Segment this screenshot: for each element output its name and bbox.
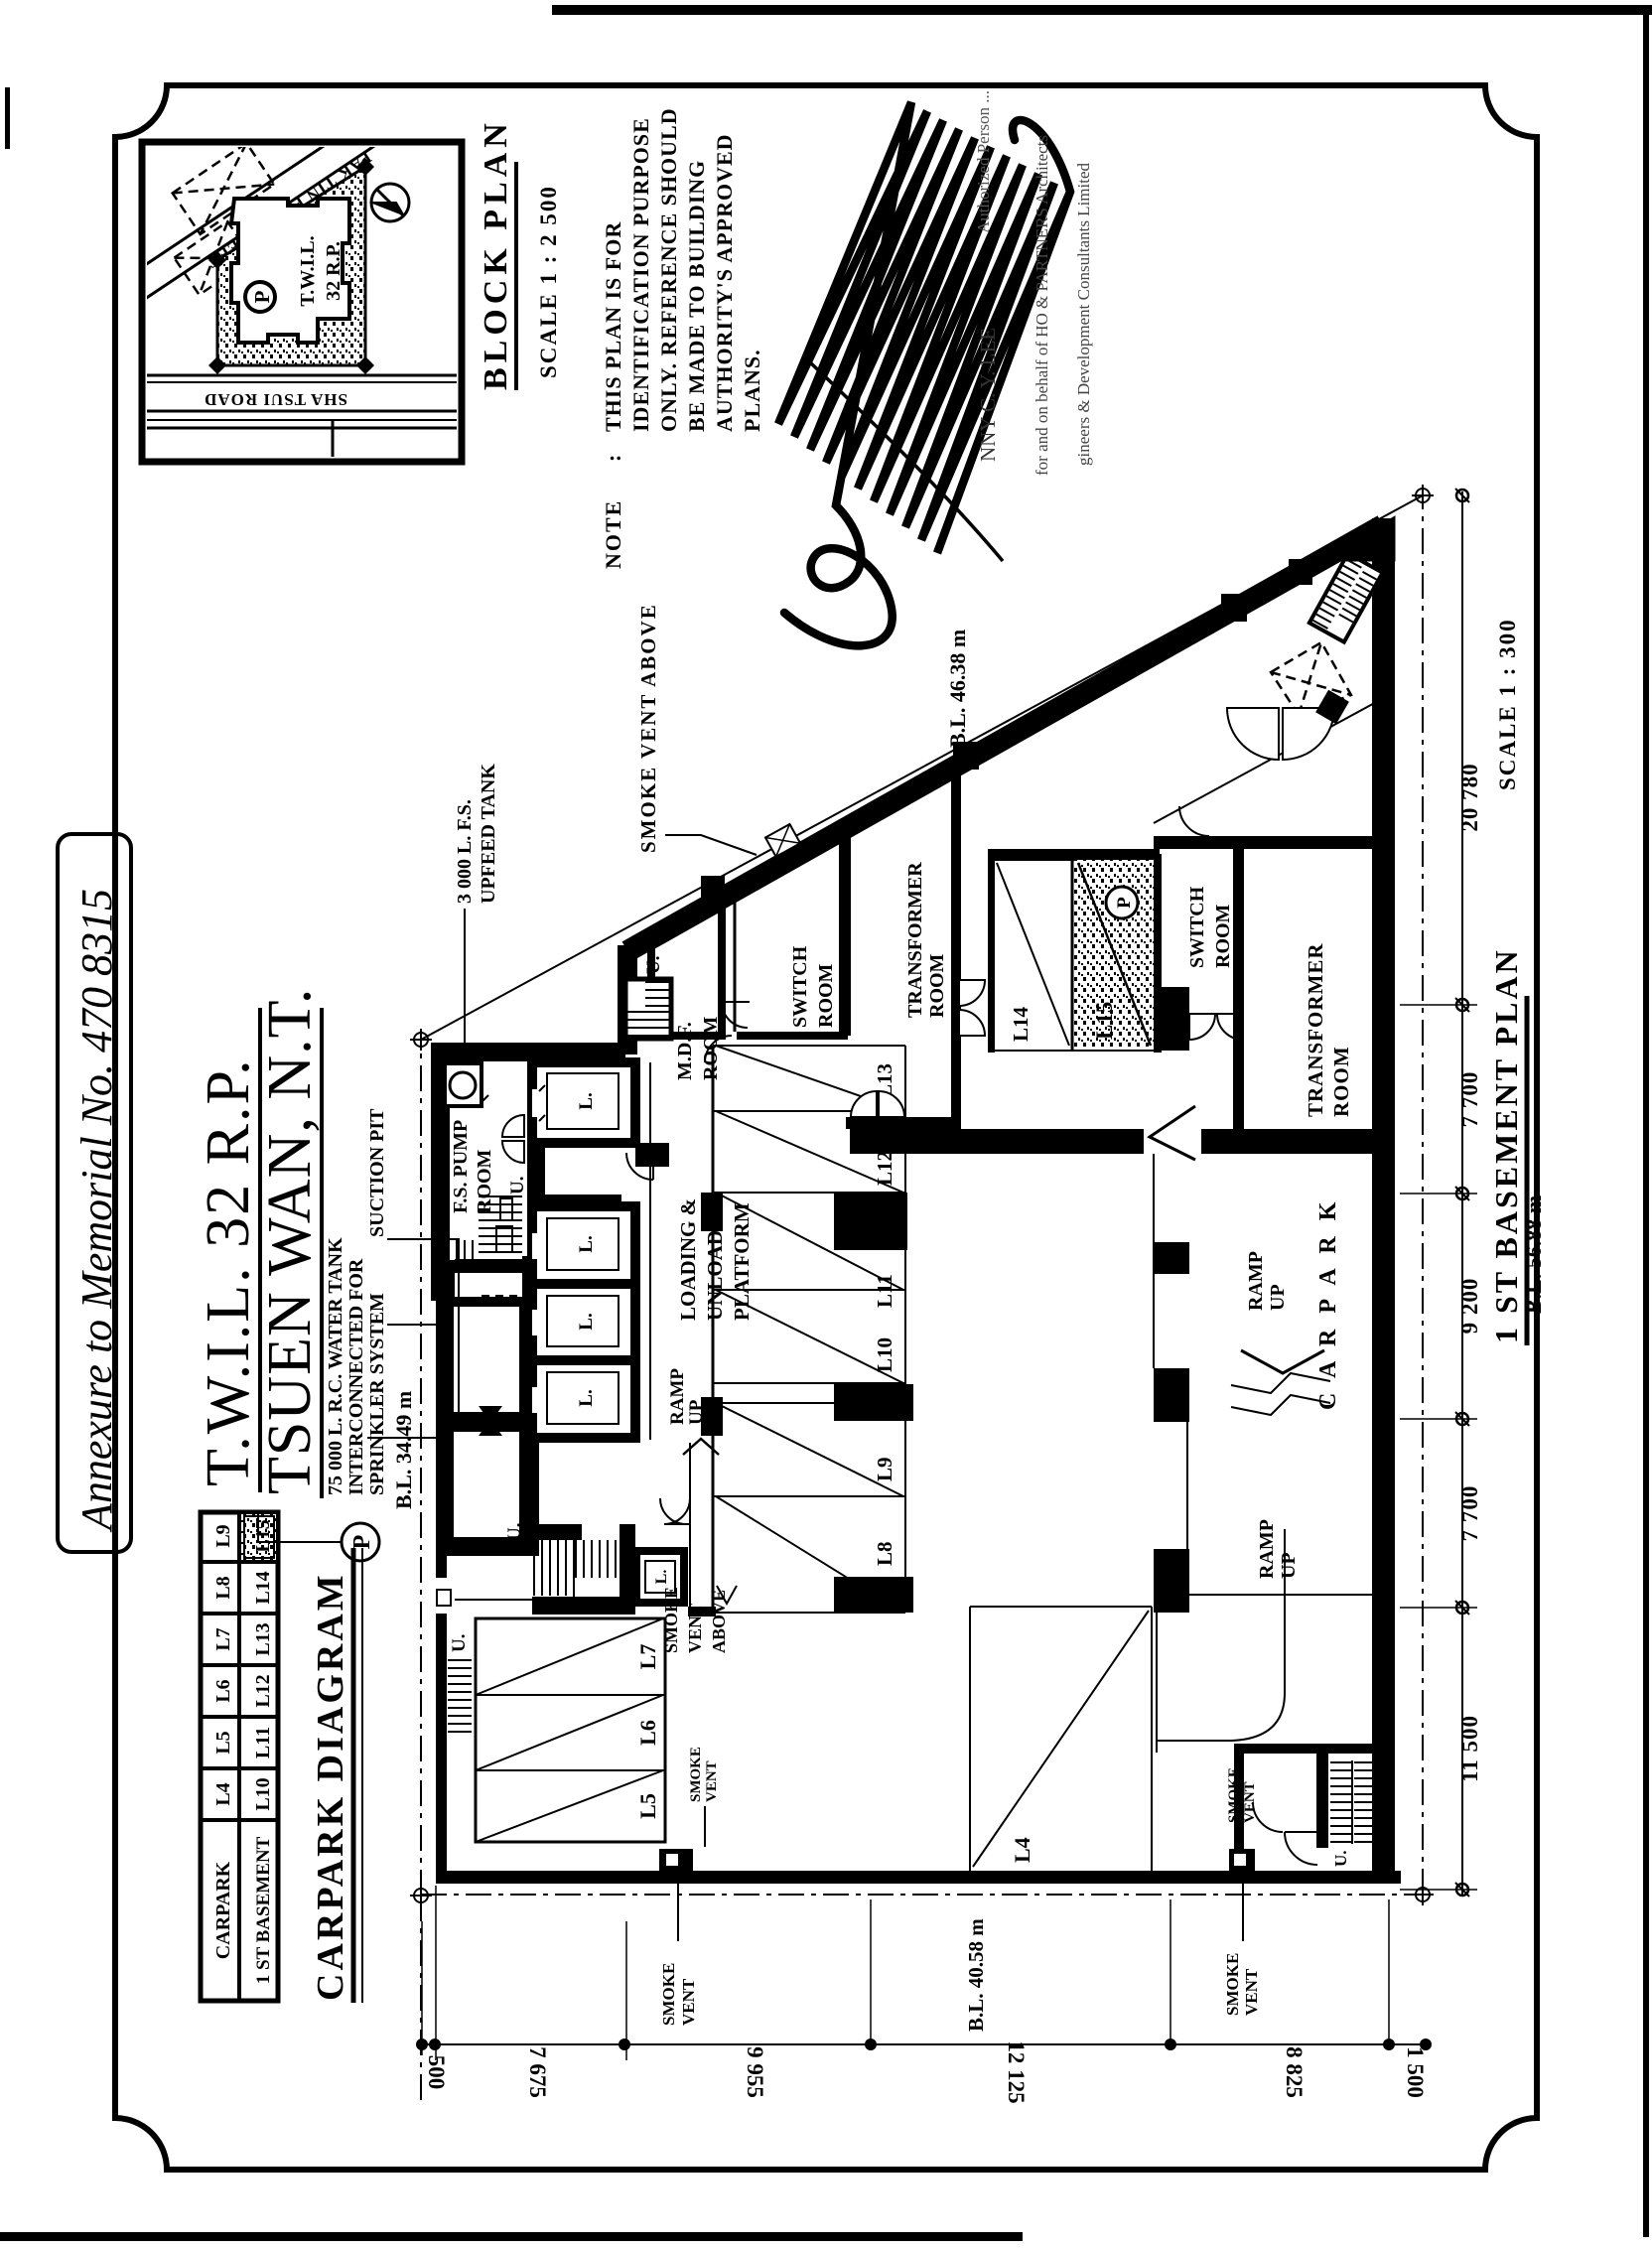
svg-text:SCALE 1 : 2 500: SCALE 1 : 2 500 <box>536 185 561 378</box>
svg-text:U.: U. <box>449 1634 470 1652</box>
svg-text:SHA TSUI ROAD: SHA TSUI ROAD <box>204 390 347 409</box>
svg-text:L7: L7 <box>212 1627 234 1650</box>
svg-text:P: P <box>349 1535 375 1550</box>
svg-text:SMOKE: SMOKE <box>688 1747 704 1802</box>
svg-text:L.: L. <box>576 1092 597 1109</box>
svg-text:U.: U. <box>507 1177 528 1195</box>
svg-text:L6: L6 <box>212 1679 234 1702</box>
svg-text:CARPARK: CARPARK <box>212 1861 234 1959</box>
svg-text:SUCTION PIT: SUCTION PIT <box>366 1108 388 1237</box>
svg-text:L13: L13 <box>252 1622 274 1655</box>
svg-text:L12: L12 <box>252 1674 274 1707</box>
svg-text:L15: L15 <box>1092 1002 1117 1040</box>
svg-text:VENT: VENT <box>1242 1968 1261 2016</box>
svg-text:ROOM: ROOM <box>1212 904 1234 968</box>
svg-text:CARPARK DIAGRAM: CARPARK DIAGRAM <box>310 1572 351 2001</box>
svg-text:AUTHORITY'S APPROVED: AUTHORITY'S APPROVED <box>712 133 737 432</box>
svg-text:1 500: 1 500 <box>1403 2046 1428 2098</box>
svg-text:ROOM: ROOM <box>1329 1046 1353 1117</box>
svg-text:SMOKE VENT ABOVE: SMOKE VENT ABOVE <box>636 603 660 853</box>
svg-text:TRANSFORMER: TRANSFORMER <box>904 862 926 1018</box>
svg-text:L9: L9 <box>212 1524 234 1547</box>
svg-text:UP: UP <box>1267 1284 1289 1311</box>
svg-text:SMOKE: SMOKE <box>1223 1953 1242 2016</box>
svg-text:9 200: 9 200 <box>1457 1278 1482 1335</box>
svg-text:RAMP: RAMP <box>1256 1519 1278 1579</box>
svg-text:SMOKE: SMOKE <box>661 1587 681 1653</box>
svg-text:9 955: 9 955 <box>743 2046 767 2098</box>
svg-text:20 780: 20 780 <box>1457 763 1482 831</box>
svg-text:75 000 L. R.C. WATER TANK: 75 000 L. R.C. WATER TANK <box>325 1237 346 1495</box>
svg-text:L10: L10 <box>252 1777 274 1810</box>
svg-text:8 825: 8 825 <box>1282 2046 1307 2098</box>
svg-text:B.L. 46.38 m: B.L. 46.38 m <box>945 630 970 748</box>
svg-text:U.: U. <box>643 956 664 974</box>
svg-text:ABOVE: ABOVE <box>709 1590 729 1653</box>
svg-text:3 000 L. F.S.: 3 000 L. F.S. <box>454 799 476 904</box>
svg-text:L10: L10 <box>873 1337 896 1372</box>
svg-text:L.: L. <box>653 1570 670 1585</box>
svg-text:Authorized Person ...: Authorized Person ... <box>974 90 993 233</box>
svg-text:ONLY. REFERENCE SHOULD: ONLY. REFERENCE SHOULD <box>656 107 681 432</box>
svg-text:U.: U. <box>1378 626 1398 643</box>
svg-text:32 R.P.: 32 R.P. <box>323 241 344 301</box>
svg-text:12 125: 12 125 <box>1004 2040 1029 2103</box>
svg-text:VENT: VENT <box>704 1760 720 1802</box>
svg-text:7 700: 7 700 <box>1457 1071 1482 1128</box>
svg-text:SCALE 1 : 300: SCALE 1 : 300 <box>1495 618 1520 790</box>
svg-text:VENT: VENT <box>685 1604 705 1653</box>
svg-text:RAMP: RAMP <box>1245 1251 1267 1311</box>
svg-text:VENT: VENT <box>679 1978 698 2026</box>
svg-text:500: 500 <box>424 2055 449 2090</box>
svg-text:L11: L11 <box>252 1727 274 1758</box>
svg-text:L11: L11 <box>873 1274 896 1308</box>
svg-text:for and on behalf of HO & PART: for and on behalf of HO & PARTNERS Archi… <box>1032 135 1051 476</box>
svg-text:TRANSFORMER: TRANSFORMER <box>1304 942 1327 1117</box>
svg-text:Annexure to Memorial No. 470 8: Annexure to Memorial No. 470 8315 <box>72 889 121 1533</box>
svg-text:ROOM: ROOM <box>926 953 948 1018</box>
svg-text:THIS PLAN IS FOR: THIS PLAN IS FOR <box>601 221 625 432</box>
svg-text:L.: L. <box>576 1389 597 1406</box>
svg-text:P: P <box>250 290 274 303</box>
svg-text:L12: L12 <box>873 1151 896 1186</box>
svg-text:IDENTIFICATION PURPOSE: IDENTIFICATION PURPOSE <box>628 117 653 432</box>
svg-text:RAMP: RAMP <box>667 1368 688 1425</box>
svg-text:L7: L7 <box>635 1644 660 1670</box>
svg-text:NNY C. Y. LEE: NNY C. Y. LEE <box>976 328 1000 462</box>
svg-text:LOADING &: LOADING & <box>676 1198 700 1321</box>
svg-text:L14: L14 <box>252 1571 274 1604</box>
svg-text:U.: U. <box>1331 1850 1350 1867</box>
svg-text:UPFEED TANK: UPFEED TANK <box>478 764 499 904</box>
svg-text:L6: L6 <box>635 1720 660 1746</box>
svg-text:L4: L4 <box>1010 1837 1034 1863</box>
svg-text:INTERCONNECTED FOR: INTERCONNECTED FOR <box>345 1258 367 1495</box>
svg-text::: : <box>601 455 625 462</box>
svg-text:NOTE: NOTE <box>601 499 625 569</box>
svg-text:BLOCK PLAN: BLOCK PLAN <box>478 118 514 390</box>
svg-text:T.W.I.L.: T.W.I.L. <box>297 235 319 306</box>
svg-text:1 ST BASEMENT: 1 ST BASEMENT <box>253 1836 274 1984</box>
svg-text:L8: L8 <box>873 1541 896 1566</box>
svg-text:SMOKE: SMOKE <box>659 1963 678 2026</box>
svg-text:SPRINKLER SYSTEM: SPRINKLER SYSTEM <box>366 1293 388 1495</box>
svg-text:T.W.I.L. 32 R.P.: T.W.I.L. 32 R.P. <box>195 1057 262 1486</box>
svg-text:VENT: VENT <box>1242 1781 1258 1823</box>
svg-text:1 ST BASEMENT PLAN: 1 ST BASEMENT PLAN <box>1488 947 1524 1343</box>
svg-text:M.D.F.: M.D.F. <box>674 1022 696 1080</box>
svg-text:L.: L. <box>576 1235 597 1252</box>
svg-text:B.L. 34.49 m: B.L. 34.49 m <box>391 1391 416 1509</box>
svg-text:gineers & Development Consul: gineers & Development Consultants Limite… <box>1074 162 1093 466</box>
svg-text:SWITCH: SWITCH <box>789 945 811 1028</box>
svg-text:11 500: 11 500 <box>1457 1715 1482 1782</box>
svg-text:BE MADE TO BUILDING: BE MADE TO BUILDING <box>684 160 709 432</box>
svg-text:L8: L8 <box>212 1576 234 1599</box>
svg-text:L9: L9 <box>873 1457 896 1481</box>
svg-text:UP: UP <box>1278 1552 1300 1579</box>
svg-text:L15: L15 <box>252 1519 274 1552</box>
svg-text:SWITCH: SWITCH <box>1186 886 1208 968</box>
svg-text:ROOM: ROOM <box>700 1016 722 1080</box>
svg-text:7 675: 7 675 <box>525 2046 550 2098</box>
svg-text:U.: U. <box>504 1523 525 1541</box>
svg-text:L5: L5 <box>635 1793 660 1819</box>
svg-text:PLANS.: PLANS. <box>740 349 764 432</box>
svg-text:L14: L14 <box>1009 1006 1032 1042</box>
svg-text:L.: L. <box>576 1313 597 1330</box>
svg-text:F.S. PUMP: F.S. PUMP <box>450 1120 472 1213</box>
svg-text:ROOM: ROOM <box>815 963 837 1028</box>
svg-text:P: P <box>1114 897 1135 909</box>
svg-text:L4: L4 <box>212 1782 234 1805</box>
svg-text:SMOKE: SMOKE <box>1226 1767 1242 1823</box>
svg-text:TSUEN WAN, N.T.: TSUEN WAN, N.T. <box>256 988 324 1494</box>
svg-text:7 700: 7 700 <box>1457 1485 1482 1542</box>
svg-text:L5: L5 <box>212 1731 234 1754</box>
svg-text:B.L. 40.58 m: B.L. 40.58 m <box>964 1918 988 2032</box>
